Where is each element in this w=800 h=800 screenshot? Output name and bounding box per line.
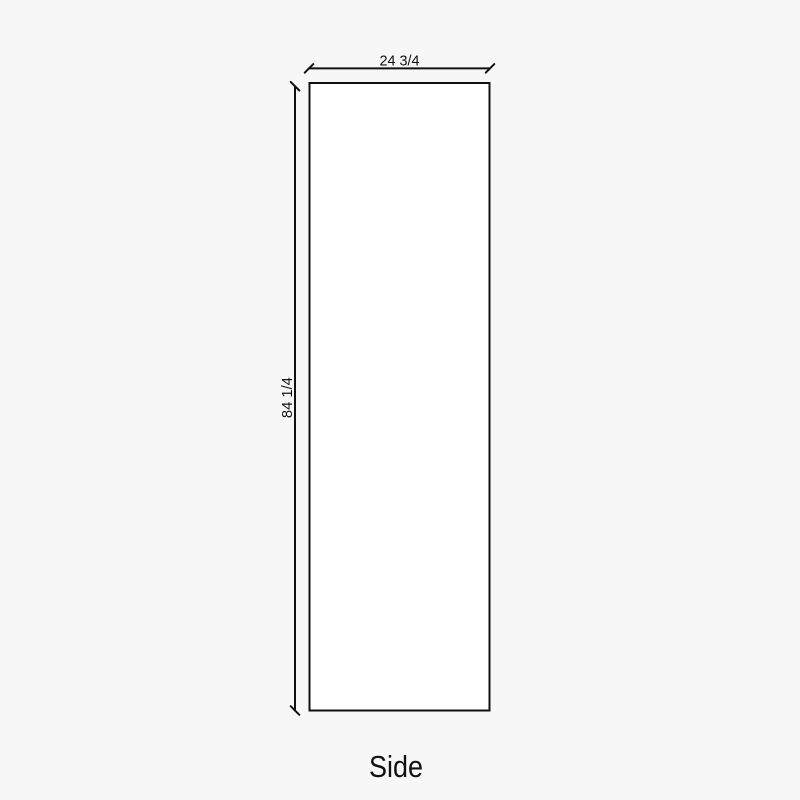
svg-text:24 3/4: 24 3/4 <box>380 53 420 70</box>
svg-text:84 1/4: 84 1/4 <box>279 377 296 418</box>
svg-text:Side: Side <box>369 749 423 784</box>
